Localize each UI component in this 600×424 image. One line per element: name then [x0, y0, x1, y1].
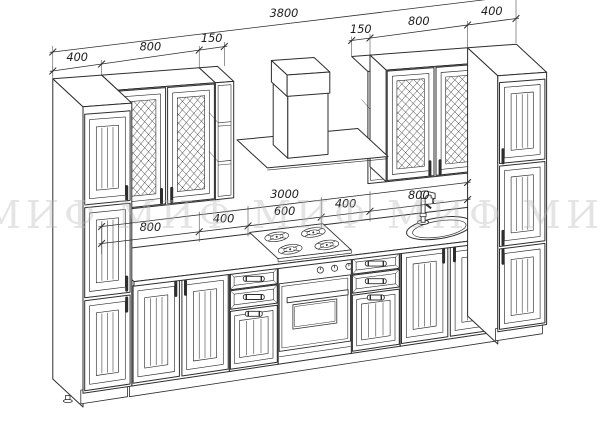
- kitchen-drawing-canvas: 3800400800150150800400300080040060040080…: [0, 0, 600, 424]
- watermark-text: МИФ: [252, 193, 371, 237]
- dimension-label: 400: [481, 5, 503, 18]
- base-cabinet-doors-left: [132, 268, 230, 386]
- watermark-text: МИФ: [117, 193, 236, 237]
- kitchen-technical-drawing: 3800400800150150800400300080040060040080…: [0, 0, 600, 424]
- watermark-text: МИФ: [387, 193, 506, 237]
- cooker-oven: [278, 253, 352, 364]
- dimension-label: 150: [350, 23, 372, 36]
- watermark-text: МИФ: [522, 193, 600, 237]
- dimension-label: 3800: [270, 7, 299, 20]
- watermark-text: МИФ: [0, 193, 101, 237]
- dimension-label: 400: [66, 51, 88, 64]
- range-hood: [237, 58, 388, 171]
- adjustable-foot: [66, 396, 71, 400]
- drawer-unit-left: [229, 262, 278, 372]
- wall-cabinet-right: [370, 48, 484, 182]
- dimension-label: 150: [201, 32, 223, 45]
- drawer-unit-right: [351, 247, 400, 353]
- dimension-label: 800: [408, 15, 430, 28]
- dimension-label: 800: [140, 41, 162, 54]
